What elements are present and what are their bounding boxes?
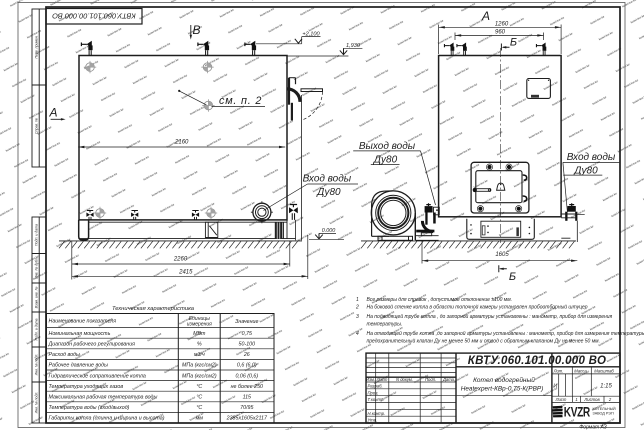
svg-text:Подп. и дата: Подп. и дата	[35, 318, 39, 340]
svg-text:Б: Б	[510, 37, 517, 49]
svg-text:1605: 1605	[495, 252, 509, 258]
svg-text:0,75: 0,75	[242, 331, 252, 337]
svg-text:1260: 1260	[495, 22, 509, 28]
svg-text:Максимальная рабочая температу: Максимальная рабочая температура воды	[49, 395, 158, 401]
svg-text:Подп. и дата: Подп. и дата	[35, 224, 39, 246]
svg-text:МПа (кгс/см2): МПа (кгс/см2)	[182, 363, 217, 369]
svg-text:1: 1	[575, 397, 577, 402]
svg-text:0,6 (6,0): 0,6 (6,0)	[237, 363, 257, 369]
svg-text:На подводящей трубе котла , д: На подводящей трубе котла , до запорной …	[367, 313, 613, 320]
svg-text:МПа (кгс/см2): МПа (кгс/см2)	[182, 373, 217, 379]
svg-text:Ду80: Ду80	[316, 187, 341, 198]
svg-text:КВТУ.060.101.00.000 ВО: КВТУ.060.101.00.000 ВО	[52, 12, 136, 21]
svg-text:Расход воды: Расход воды	[49, 352, 80, 358]
svg-text:Листов: Листов	[583, 397, 600, 402]
svg-text:А: А	[481, 9, 490, 23]
svg-text:Инв. № подл.: Инв. № подл.	[35, 354, 39, 376]
svg-text:Наименование показателя: Наименование показателя	[49, 319, 117, 325]
svg-text:%: %	[197, 342, 202, 348]
svg-text:3: 3	[356, 314, 359, 320]
svg-text:Значение: Значение	[235, 319, 258, 325]
svg-text:960: 960	[495, 30, 506, 36]
svg-text:предохранительный клапан Ду н: предохранительный клапан Ду не менее 50 …	[367, 337, 600, 344]
svg-text:Дата: Дата	[442, 377, 455, 382]
svg-text:КВТУ.060.101.00.000 ВО: КВТУ.060.101.00.000 ВО	[468, 355, 607, 367]
svg-text:Ду80: Ду80	[373, 155, 398, 166]
svg-text:температуры.: температуры.	[367, 321, 403, 327]
svg-text:На отводящей трубе котла ,до з: На отводящей трубе котла ,до запорной ар…	[367, 330, 644, 337]
svg-text:26: 26	[243, 352, 250, 358]
svg-text:N докум.: N докум.	[396, 377, 413, 382]
svg-text:2: 2	[355, 304, 359, 310]
svg-text:2260: 2260	[173, 256, 188, 262]
svg-text:1,930: 1,930	[346, 43, 361, 49]
svg-text:Разраб.: Разраб.	[368, 384, 383, 389]
svg-text:Лист: Лист	[555, 397, 567, 402]
svg-text:0,06 (0,6): 0,06 (0,6)	[235, 373, 258, 379]
svg-text:115: 115	[243, 395, 251, 401]
svg-text:Выход воды: Выход воды	[359, 141, 416, 152]
svg-text:Формат А3: Формат А3	[579, 425, 607, 430]
svg-text:Справ. №: Справ. №	[35, 118, 39, 134]
svg-text:Все размеры для справок , допу: Все размеры для справок , допустимое отк…	[367, 297, 513, 303]
svg-text:Габариты котла (длинна и ширин: Габариты котла (длинна и ширина и высота…	[49, 416, 165, 422]
svg-text:4: 4	[356, 331, 359, 337]
svg-text:Температура уходящих газов: Температура уходящих газов	[49, 384, 124, 390]
svg-text:Heatexpert-КВр-0,75-К(РВР): Heatexpert-КВр-0,75-К(РВР)	[461, 386, 543, 393]
svg-text:Котел водогрейный: Котел водогрейный	[473, 376, 535, 384]
svg-text:2415: 2415	[178, 269, 193, 275]
svg-text:2160: 2160	[174, 139, 189, 145]
svg-text:Техническая характеристика: Техническая характеристика	[112, 306, 195, 312]
svg-text:В: В	[193, 23, 201, 37]
svg-text:Взам. инв. №: Взам. инв. №	[35, 286, 39, 308]
svg-text:Инв. № подл.: Инв. № подл.	[35, 392, 39, 414]
svg-text:50-100: 50-100	[239, 342, 256, 348]
svg-text:ЗАВОД РЭП: ЗАВОД РЭП	[593, 411, 614, 415]
svg-text:м3/ч: м3/ч	[194, 352, 205, 358]
svg-text:1: 1	[356, 297, 359, 303]
svg-text:Утв.: Утв.	[368, 418, 378, 423]
svg-text:измерения: измерения	[187, 321, 212, 327]
svg-text:не более 250: не более 250	[231, 384, 263, 390]
svg-text:Н.контр.: Н.контр.	[368, 411, 386, 416]
svg-text:Масса: Масса	[574, 369, 587, 374]
svg-text:Гидравлическое сопративление к: Гидравлическое сопративление котла	[49, 373, 146, 379]
svg-text:Масштаб: Масштаб	[594, 369, 614, 374]
svg-text:70/95: 70/95	[240, 405, 253, 411]
svg-text:Вход воды: Вход воды	[567, 152, 616, 163]
svg-text:Лит.: Лит.	[553, 369, 564, 374]
svg-text:+2,100: +2,100	[302, 31, 320, 37]
svg-text:Подп.: Подп.	[425, 377, 436, 382]
svg-text:КОТЕЛЬНЫЙ: КОТЕЛЬНЫЙ	[593, 407, 616, 411]
svg-text:Инв. № дубл.: Инв. № дубл.	[35, 257, 39, 279]
svg-text:Рабочее давление воды: Рабочее давление воды	[49, 363, 108, 369]
svg-text:Пров.: Пров.	[368, 390, 379, 395]
svg-text:А: А	[49, 106, 58, 120]
svg-text:°С: °С	[196, 384, 202, 390]
svg-text:МВт: МВт	[193, 331, 206, 337]
svg-text:Диапазон рабочего регулировани: Диапазон рабочего регулирования	[48, 342, 136, 348]
svg-text:мм: мм	[196, 416, 204, 422]
svg-text:Лист: Лист	[376, 377, 388, 382]
svg-text:Изм.: Изм.	[366, 377, 375, 382]
svg-text:см. п. 2: см. п. 2	[219, 95, 262, 107]
svg-text:°С: °С	[196, 395, 202, 401]
svg-text:Т.контр.: Т.контр.	[368, 397, 385, 402]
svg-text:2385х1605х2117: 2385х1605х2117	[226, 416, 268, 422]
svg-text:KVZR: KVZR	[564, 404, 591, 420]
svg-text:1:15: 1:15	[600, 384, 612, 390]
svg-text:Б: Б	[509, 271, 516, 283]
svg-text:Перв. примен.: Перв. примен.	[35, 35, 39, 58]
svg-text:°С: °С	[196, 405, 202, 411]
svg-text:На боковой стенке котла в обла: На боковой стенке котла в области топочн…	[367, 303, 588, 310]
svg-text:Температура воды (вход/выход): Температура воды (вход/выход)	[49, 405, 130, 411]
svg-text:Вход воды: Вход воды	[303, 173, 352, 184]
svg-text:Номинальная мощность: Номинальная мощность	[49, 331, 111, 337]
